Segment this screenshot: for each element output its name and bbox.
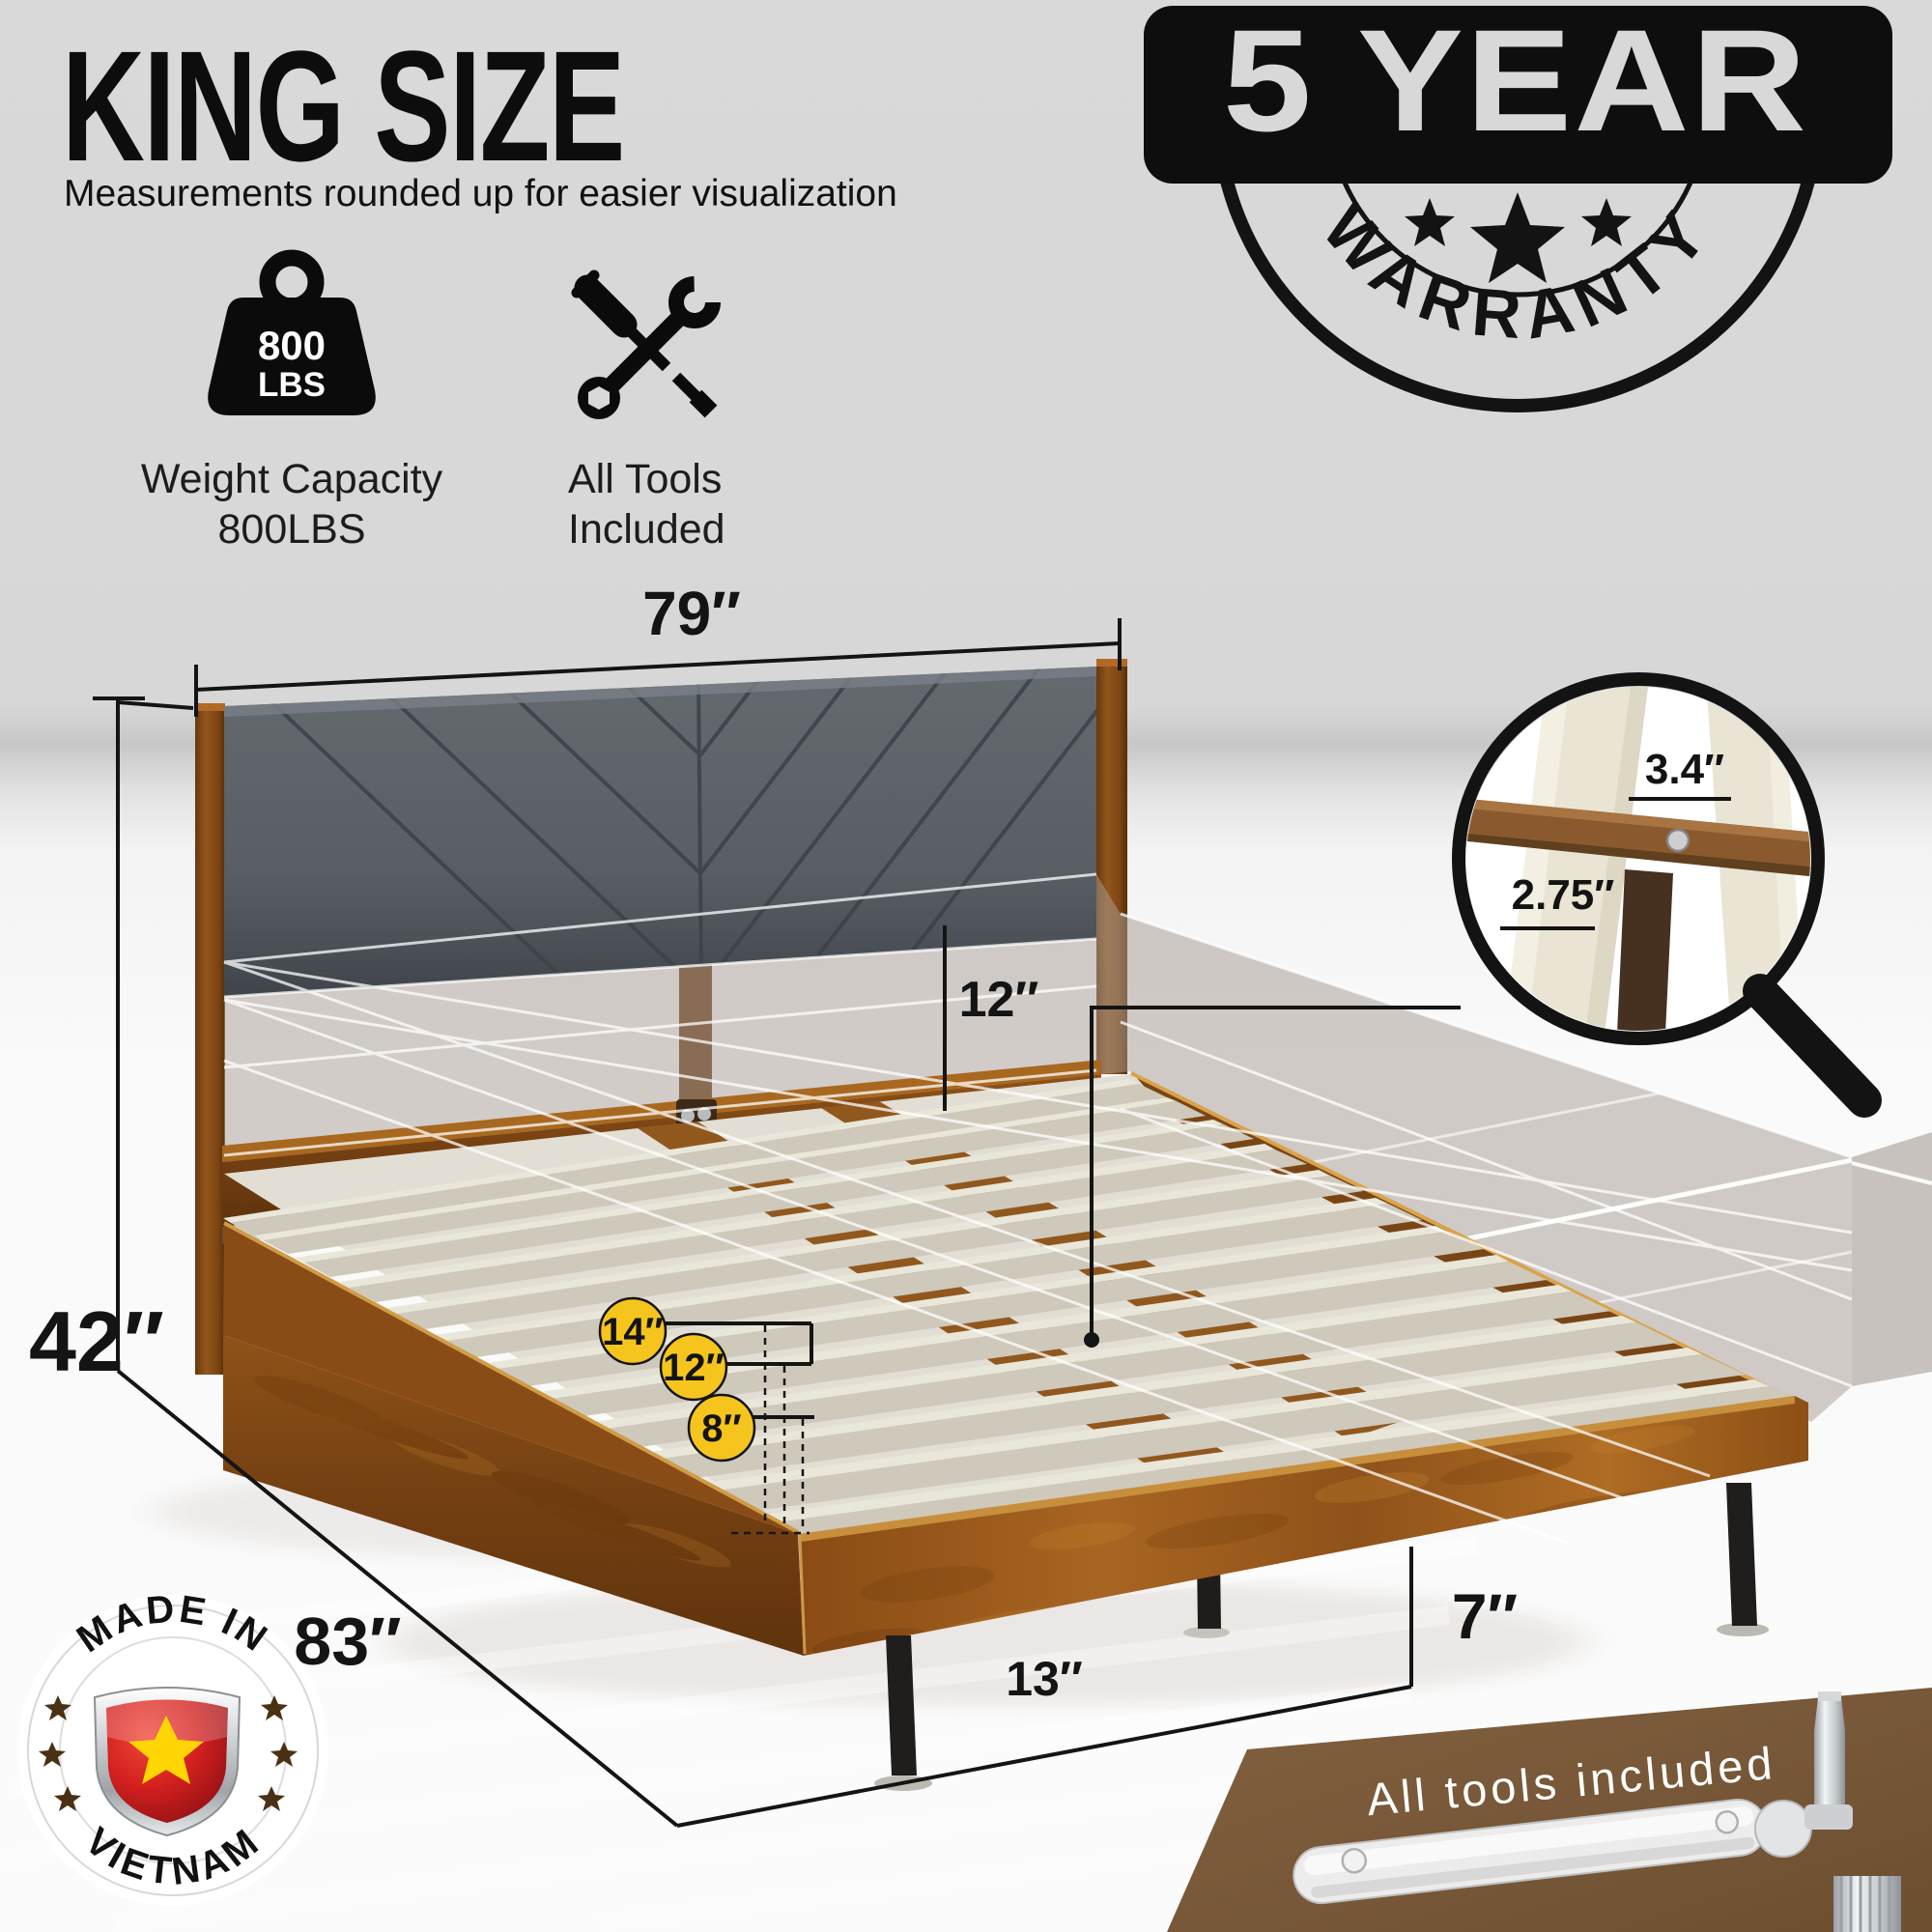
svg-text:12″: 12″ — [959, 972, 1039, 1028]
svg-text:13″: 13″ — [1006, 1652, 1083, 1706]
svg-text:79″: 79″ — [642, 579, 741, 648]
svg-text:2.75″: 2.75″ — [1512, 871, 1615, 919]
svg-text:7″: 7″ — [1452, 1580, 1518, 1652]
svg-text:LBS: LBS — [258, 366, 326, 404]
svg-text:83″: 83″ — [294, 1604, 401, 1679]
svg-text:Measurements rounded up for ea: Measurements rounded up for easier visua… — [64, 173, 897, 214]
svg-text:All Tools: All Tools — [568, 456, 722, 502]
svg-text:800LBS: 800LBS — [217, 506, 365, 553]
svg-text:14″: 14″ — [602, 1311, 664, 1353]
svg-text:Weight Capacity: Weight Capacity — [141, 456, 443, 502]
svg-text:3.4″: 3.4″ — [1645, 746, 1724, 793]
svg-text:42″: 42″ — [29, 1293, 164, 1389]
svg-text:Included: Included — [568, 506, 725, 553]
svg-text:12″: 12″ — [663, 1347, 724, 1389]
svg-text:5 YEAR: 5 YEAR — [1223, 0, 1808, 161]
svg-text:KING SIZE: KING SIZE — [62, 19, 624, 195]
svg-text:8″: 8″ — [701, 1407, 741, 1450]
svg-text:800: 800 — [258, 323, 326, 368]
